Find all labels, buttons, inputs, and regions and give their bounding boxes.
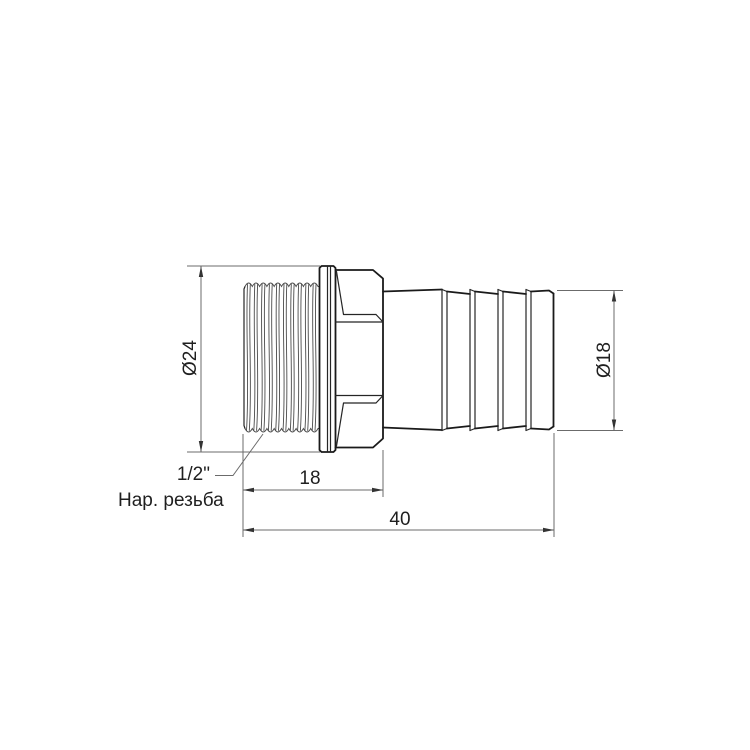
dimension-thread-length: 18 [243, 434, 383, 537]
hex-section [336, 270, 384, 448]
arrow-right-icon [372, 488, 383, 492]
thread-od-label: Ø24 [180, 340, 201, 376]
thread-type-label: Нар. резьба [118, 490, 224, 511]
barb-od-label: Ø18 [594, 342, 615, 378]
flange [320, 266, 336, 452]
arrow-left-icon [243, 488, 254, 492]
thread-size-label: 1/2" [177, 464, 210, 485]
fitting-outline [244, 266, 554, 452]
thread-section [244, 283, 320, 432]
arrow-up-icon [612, 291, 616, 302]
arrow-right-icon [543, 528, 554, 532]
hose-barb-fitting-drawing: Ø24 Ø18 18 40 [0, 0, 750, 750]
technical-drawing-page: Ø24 Ø18 18 40 [0, 0, 750, 750]
barb-section [442, 290, 554, 431]
dimension-total-length: 40 [243, 433, 554, 537]
arrow-down-icon [612, 420, 616, 431]
barb-tip [526, 290, 554, 431]
dimensions: Ø24 Ø18 18 40 [118, 266, 623, 537]
neck-cone [383, 290, 442, 431]
arrow-up-icon [199, 266, 203, 277]
thread-length-label: 18 [299, 468, 320, 489]
arrow-down-icon [199, 441, 203, 452]
leader-line [215, 434, 263, 476]
arrow-left-icon [243, 528, 254, 532]
thread-callout: 1/2" Нар. резьба [118, 434, 263, 511]
dimension-barb-od: Ø18 [557, 291, 623, 431]
total-length-label: 40 [389, 509, 410, 530]
